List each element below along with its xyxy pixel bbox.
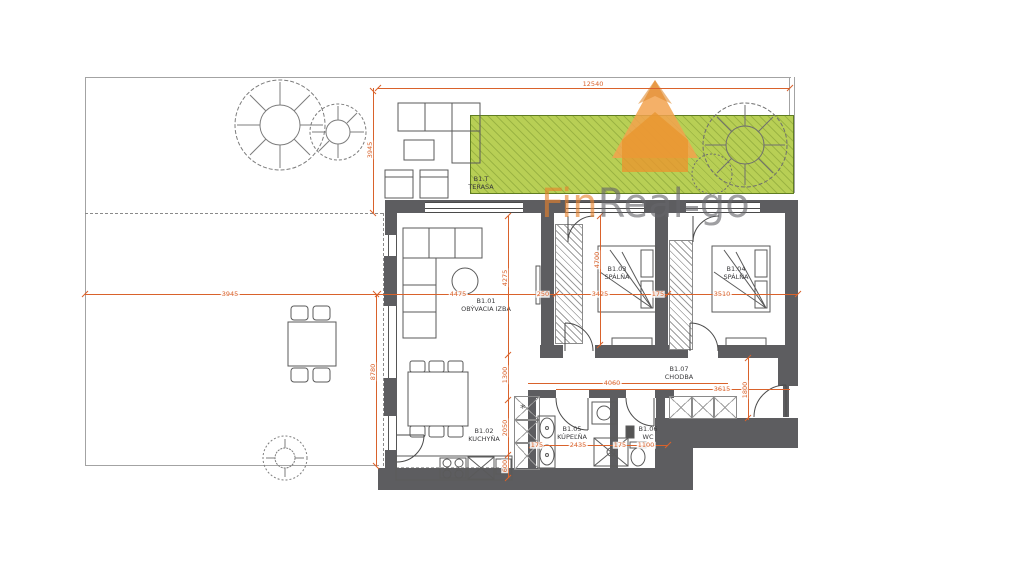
room-label-bedroom1: B1.03 SPÁLŇA [604,266,629,282]
dimension-label: 3615 [713,386,732,393]
room-name: CHODBA [665,374,693,382]
watermark-fin: Fin [541,181,598,227]
dimension-label: 1100 [637,442,656,449]
dimension-line [378,88,790,89]
dimension-label: 175 [530,442,544,449]
room-label-kitchen: B1.02 KUCHYŇA [468,428,500,444]
dimension-line [528,383,728,384]
dimension-ticks [82,85,801,481]
dimension-label: 250 [536,291,550,298]
room-label-bath: B1.05 KÚPEĽŇA [557,426,587,442]
dimension-label: 4275 [502,269,509,288]
dimension-label: 1300 [502,366,509,385]
dimension-line [556,389,790,390]
dimension-line [508,216,509,478]
dimension-label: 4060 [603,380,622,387]
dimension-label: 3945 [221,291,240,298]
floorplan-canvas: * [0,0,1011,570]
dimension-label: 12540 [582,81,605,88]
dimension-line [85,294,798,295]
room-label-living: B1.01 OBÝVACIA IZBA [461,298,511,314]
room-label-bedroom2: B1.04 SPÁLŇA [723,266,748,282]
room-name: SPÁLŇA [723,274,748,282]
room-name: SPÁLŇA [604,274,629,282]
room-name: OBÝVACIA IZBA [461,306,511,314]
kitchen-dining-set [408,361,468,437]
dimension-label: 600 [502,459,509,473]
room-name: TERASA [468,184,493,192]
dimension-label: 3510 [713,291,732,298]
tree-icon [310,104,366,160]
room-label-wc: B1.06 WC [639,426,658,442]
watermark-go: go [700,181,750,227]
room-name: KUCHYŇA [468,436,500,444]
dimension-label: 3945 [367,141,374,160]
dimension-label: 175 [613,442,627,449]
tree-icon [263,436,307,480]
terrace-sofa [385,103,480,198]
dimension-line [600,216,601,346]
dimension-label: 2050 [502,419,509,438]
dimension-label: 4475 [449,291,468,298]
watermark-real: Real [598,181,684,227]
fridge-icon: * [520,402,526,415]
patio-table-set [288,306,336,382]
room-label-hall: B1.07 CHODBA [665,366,693,382]
living-sofa [403,228,540,338]
dimension-label: 1800 [742,381,749,400]
watermark: FinRealgo [541,181,750,227]
dimension-label: 175 [651,291,665,298]
room-label-terrace: B1.T TERASA [468,176,493,192]
dimension-label: 4700 [594,251,601,270]
tree-icon [235,80,325,170]
dimension-label: 8780 [370,363,377,382]
dimension-label: 2435 [569,442,588,449]
watermark-separator [686,206,698,211]
